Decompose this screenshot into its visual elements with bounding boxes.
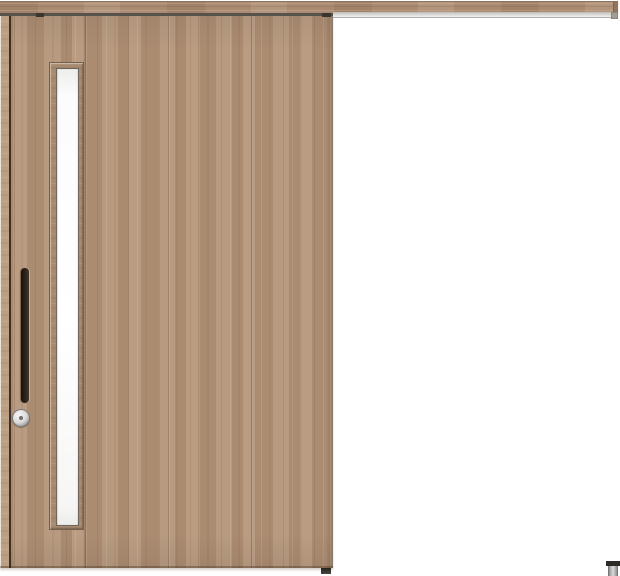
- thumbturn-lock-icon: [12, 409, 30, 427]
- door-handle: [21, 268, 29, 403]
- sliding-door-product-image: [0, 0, 620, 576]
- door-panel: [0, 16, 333, 568]
- track-end-cap: [611, 12, 618, 19]
- door-hanger-right: [322, 13, 331, 17]
- door-hanger-left: [36, 13, 44, 17]
- floor-guide-body: [608, 566, 618, 576]
- door-left-stile: [0, 16, 11, 568]
- door-right-edge: [327, 16, 333, 568]
- aluminum-track: [333, 12, 612, 18]
- slit-window-frame: [49, 62, 84, 530]
- slit-window-glass: [56, 68, 79, 526]
- door-bottom-guide: [321, 568, 331, 574]
